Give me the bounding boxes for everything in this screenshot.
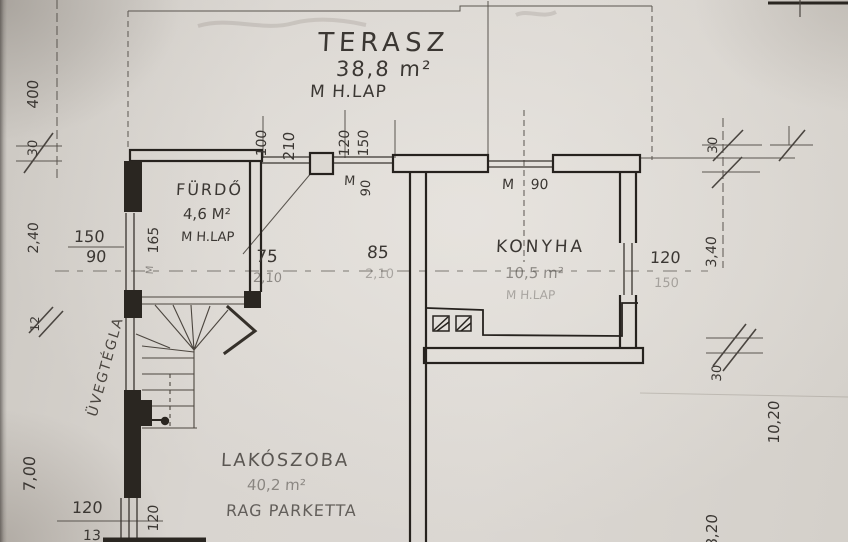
staircase: [136, 297, 244, 428]
dim-bottom-left-13: 13: [83, 529, 102, 542]
chimney-flues: [433, 316, 471, 331]
room-area-lakoszoba: 40,2 m²: [247, 478, 307, 493]
dim-bottom-wall-120: 120: [147, 504, 161, 532]
dim-left-240: 2,40: [27, 222, 41, 254]
room-area-konyha: 10,5 m²: [505, 266, 565, 281]
dim-right-hash-30: 30: [711, 364, 724, 381]
dim-right-total-1020: 10,20: [767, 400, 782, 444]
dim-left-window-width: 150: [74, 229, 105, 245]
room-floor-konyha: M H.LAP: [506, 289, 556, 301]
dim-kitchen-window-width: 120: [650, 250, 681, 266]
floorplan-drawing: [0, 0, 848, 542]
dim-pillar-parapet-90: 90: [360, 179, 373, 196]
room-area-terasz: 38,8 m²: [335, 59, 432, 80]
dim-top-window-height: 150: [357, 129, 371, 157]
label-kitchen-window-parapet: M 90: [502, 178, 549, 192]
room-label-furdo: FÜRDŐ: [176, 182, 244, 198]
dim-right-offset-30: 30: [707, 136, 720, 153]
dim-right-340: 3,40: [705, 236, 719, 268]
stair-winder-edge: [225, 307, 255, 353]
dim-terrace-door-width: 210: [282, 131, 297, 161]
room-floor-lakoszoba: RAG PARKETTA: [226, 503, 358, 519]
paper-edge-shadow: [0, 0, 7, 542]
dim-right-820: 8,20: [705, 514, 720, 542]
dim-hall-door-width: 85: [367, 245, 390, 262]
room-label-konyha: KONYHA: [496, 239, 586, 256]
mark-furdo-door-m: M: [146, 265, 156, 274]
room-label-terasz: TERASZ: [317, 30, 450, 56]
paper-crease: [640, 393, 848, 397]
label-pillar-parapet-m: M: [344, 175, 356, 188]
dim-furdo-width-165: 165: [147, 226, 161, 254]
bleedthrough-marks: [198, 12, 556, 26]
dim-furdo-door-height: 2,10: [253, 272, 283, 285]
dim-kitchen-window-height: 150: [654, 277, 680, 290]
dim-terrace-door-side: 100: [255, 129, 269, 157]
dim-hall-door-height: 2,10: [365, 268, 395, 281]
room-floor-terasz: M H.LAP: [310, 84, 388, 101]
floorplan-scan: TERASZ 38,8 m² M H.LAP FÜRDŐ 4,6 M² M H.…: [0, 0, 848, 542]
room-label-lakoszoba: LAKÓSZOBA: [221, 452, 350, 470]
dim-left-hash-12: 12: [29, 316, 41, 332]
dim-left-window-height: 90: [86, 249, 107, 265]
dim-bottom-left-120: 120: [72, 500, 103, 516]
dim-left-700: 7,00: [22, 455, 38, 492]
room-floor-furdo: M H.LAP: [181, 231, 235, 244]
wall-pillar: [310, 153, 333, 174]
dim-left-offset-30: 30: [27, 139, 40, 156]
dim-top-window-width: 120: [338, 129, 352, 157]
dim-left-total-400: 400: [26, 79, 41, 109]
dim-furdo-door-width: 75: [256, 249, 279, 266]
room-area-furdo: 4,6 M²: [183, 207, 231, 222]
